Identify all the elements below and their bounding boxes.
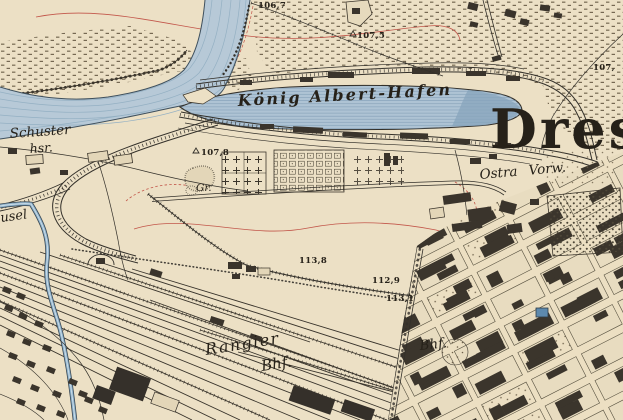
city-park bbox=[547, 188, 623, 256]
label-city-name: Dres bbox=[490, 97, 623, 161]
elevation-106-7: 106,7 bbox=[258, 1, 286, 11]
elevation-113-1: 113,1 bbox=[386, 294, 414, 304]
label-gravel-pit: Gr. bbox=[196, 182, 212, 194]
label-schuster-2: hsr. bbox=[29, 139, 53, 156]
elevation-112-9: 112,9 bbox=[372, 276, 400, 286]
historical-map: Schuster hsr. usel König Albert-Hafen Dr… bbox=[0, 0, 623, 420]
elevation-107-8: 107,8 bbox=[201, 148, 229, 158]
elevation-107: 107, bbox=[593, 63, 615, 73]
label-station: Bhf. bbox=[418, 335, 448, 354]
elevation-113-8: 113,8 bbox=[299, 256, 327, 266]
city-pond bbox=[536, 308, 548, 317]
elevation-107-5: 107,5 bbox=[357, 31, 385, 41]
map-canvas: Schuster hsr. usel König Albert-Hafen Dr… bbox=[0, 0, 623, 420]
